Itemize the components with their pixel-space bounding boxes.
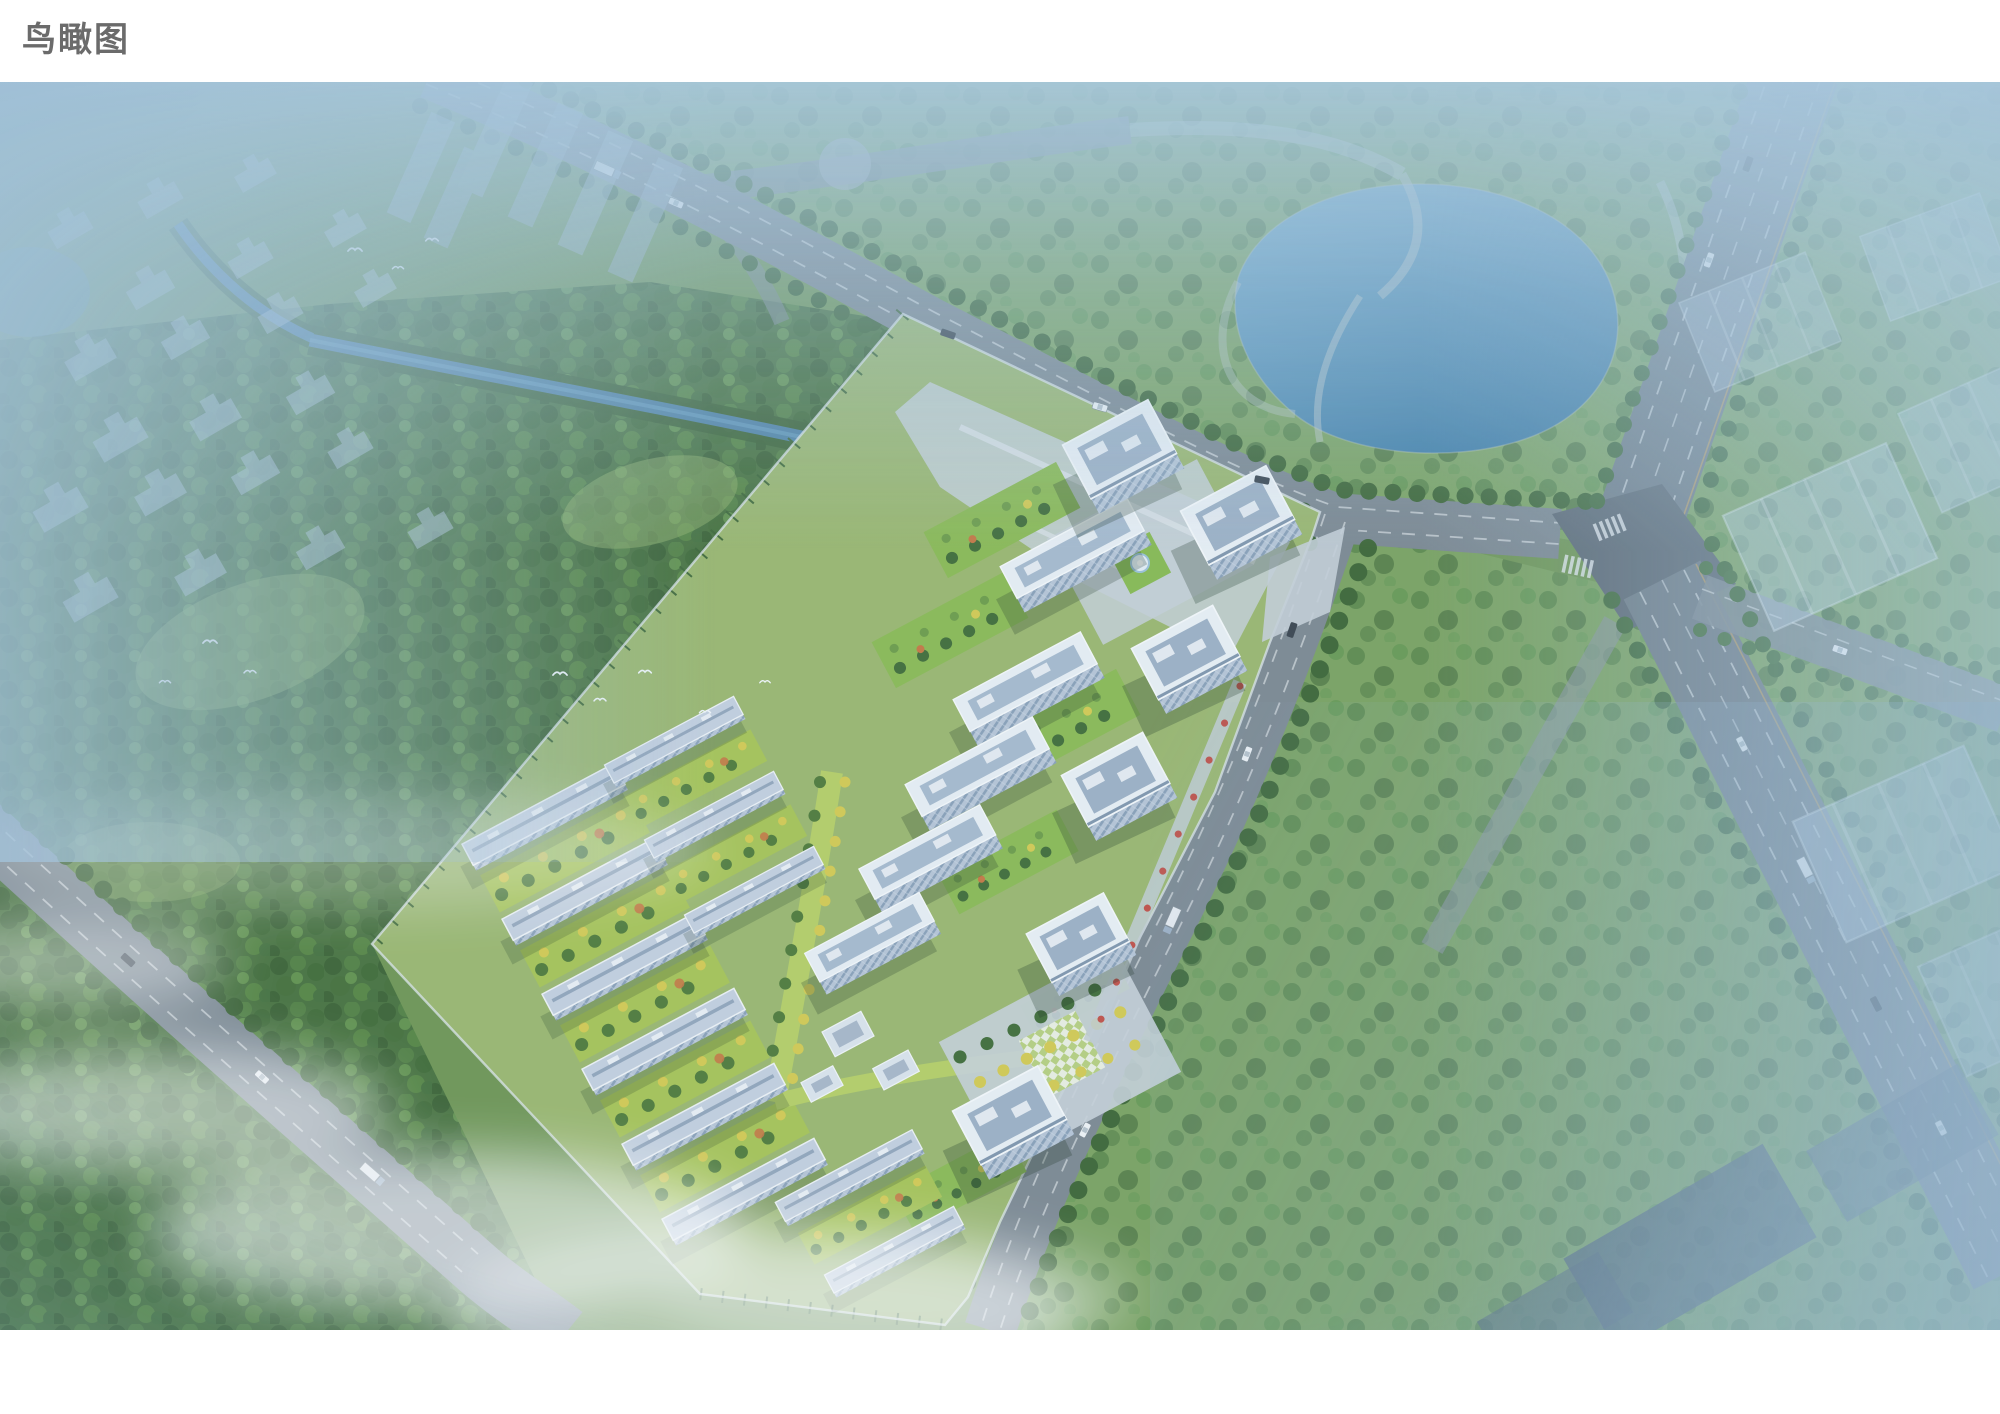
aerial-render-svg (0, 82, 2000, 1330)
cool-tint (0, 82, 2000, 1330)
aerial-view-image (0, 82, 2000, 1330)
page-title: 鸟瞰图 (22, 12, 130, 61)
page-header: 鸟瞰图 (22, 12, 130, 61)
layer-atmosphere (0, 82, 2000, 1330)
